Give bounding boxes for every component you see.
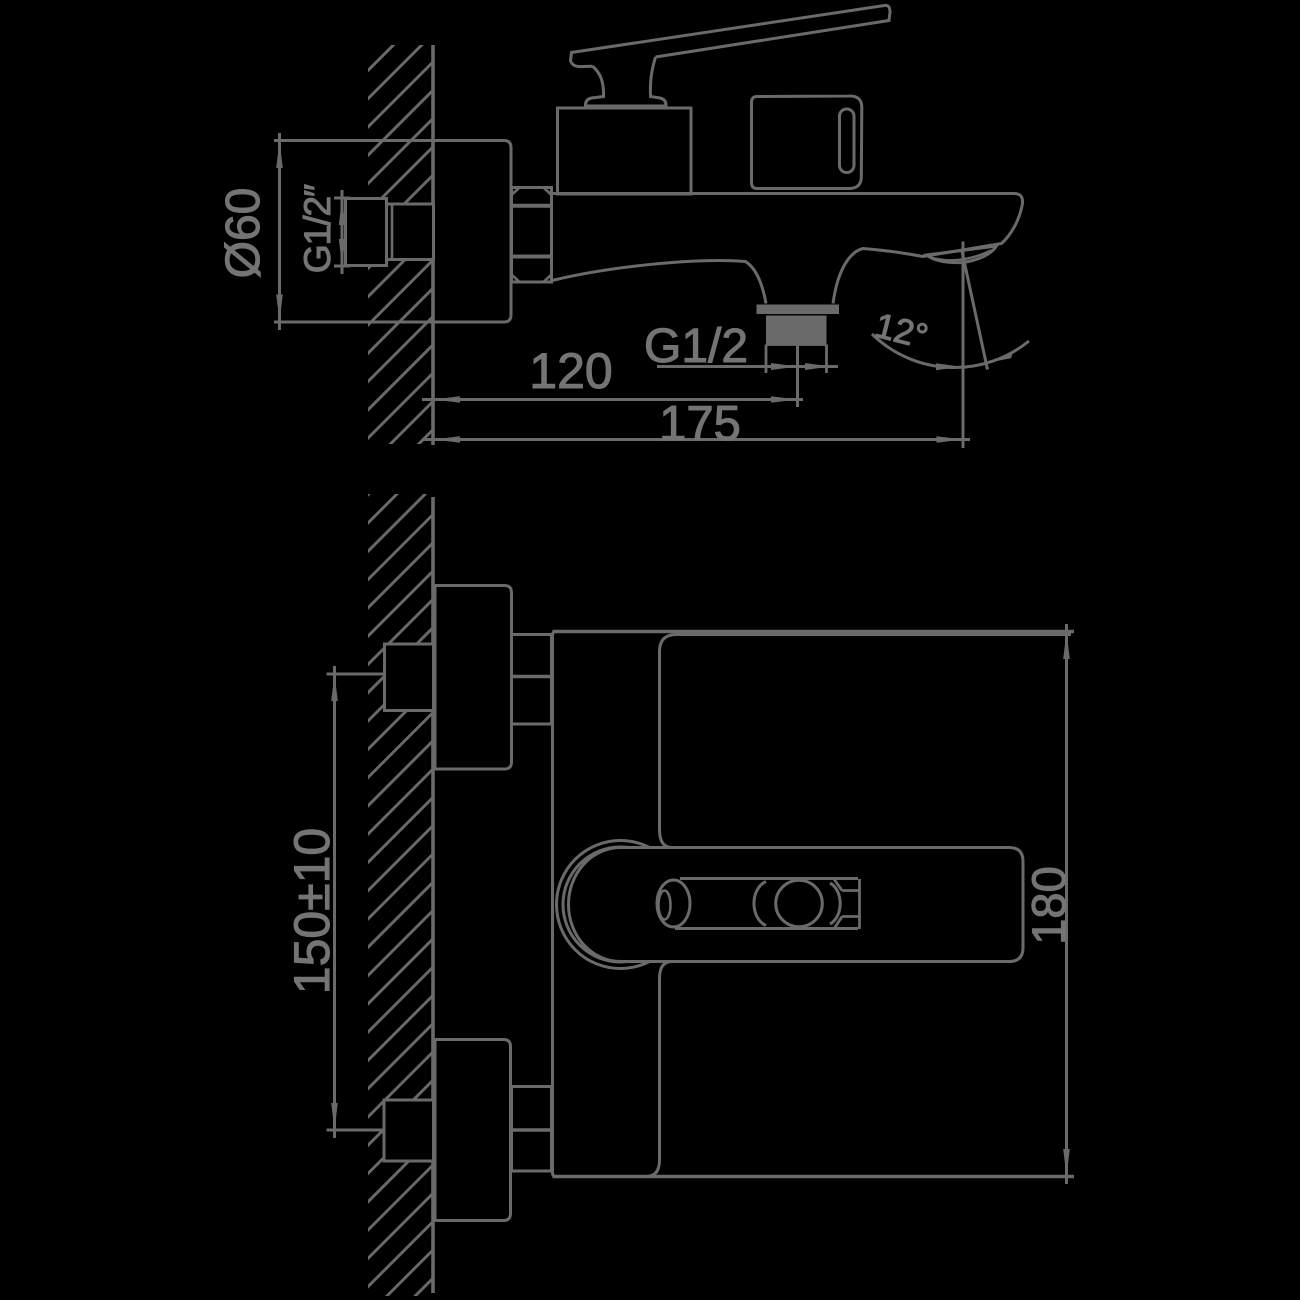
svg-text:G1/2″: G1/2″ <box>297 184 338 273</box>
svg-text:Ø60: Ø60 <box>217 188 270 279</box>
svg-text:150±10: 150±10 <box>284 828 340 994</box>
svg-text:G1/2: G1/2 <box>644 320 748 373</box>
svg-text:175: 175 <box>659 397 741 451</box>
svg-text:120: 120 <box>529 343 612 399</box>
svg-text:180: 180 <box>1022 866 1075 944</box>
svg-text:12°: 12° <box>871 306 932 357</box>
